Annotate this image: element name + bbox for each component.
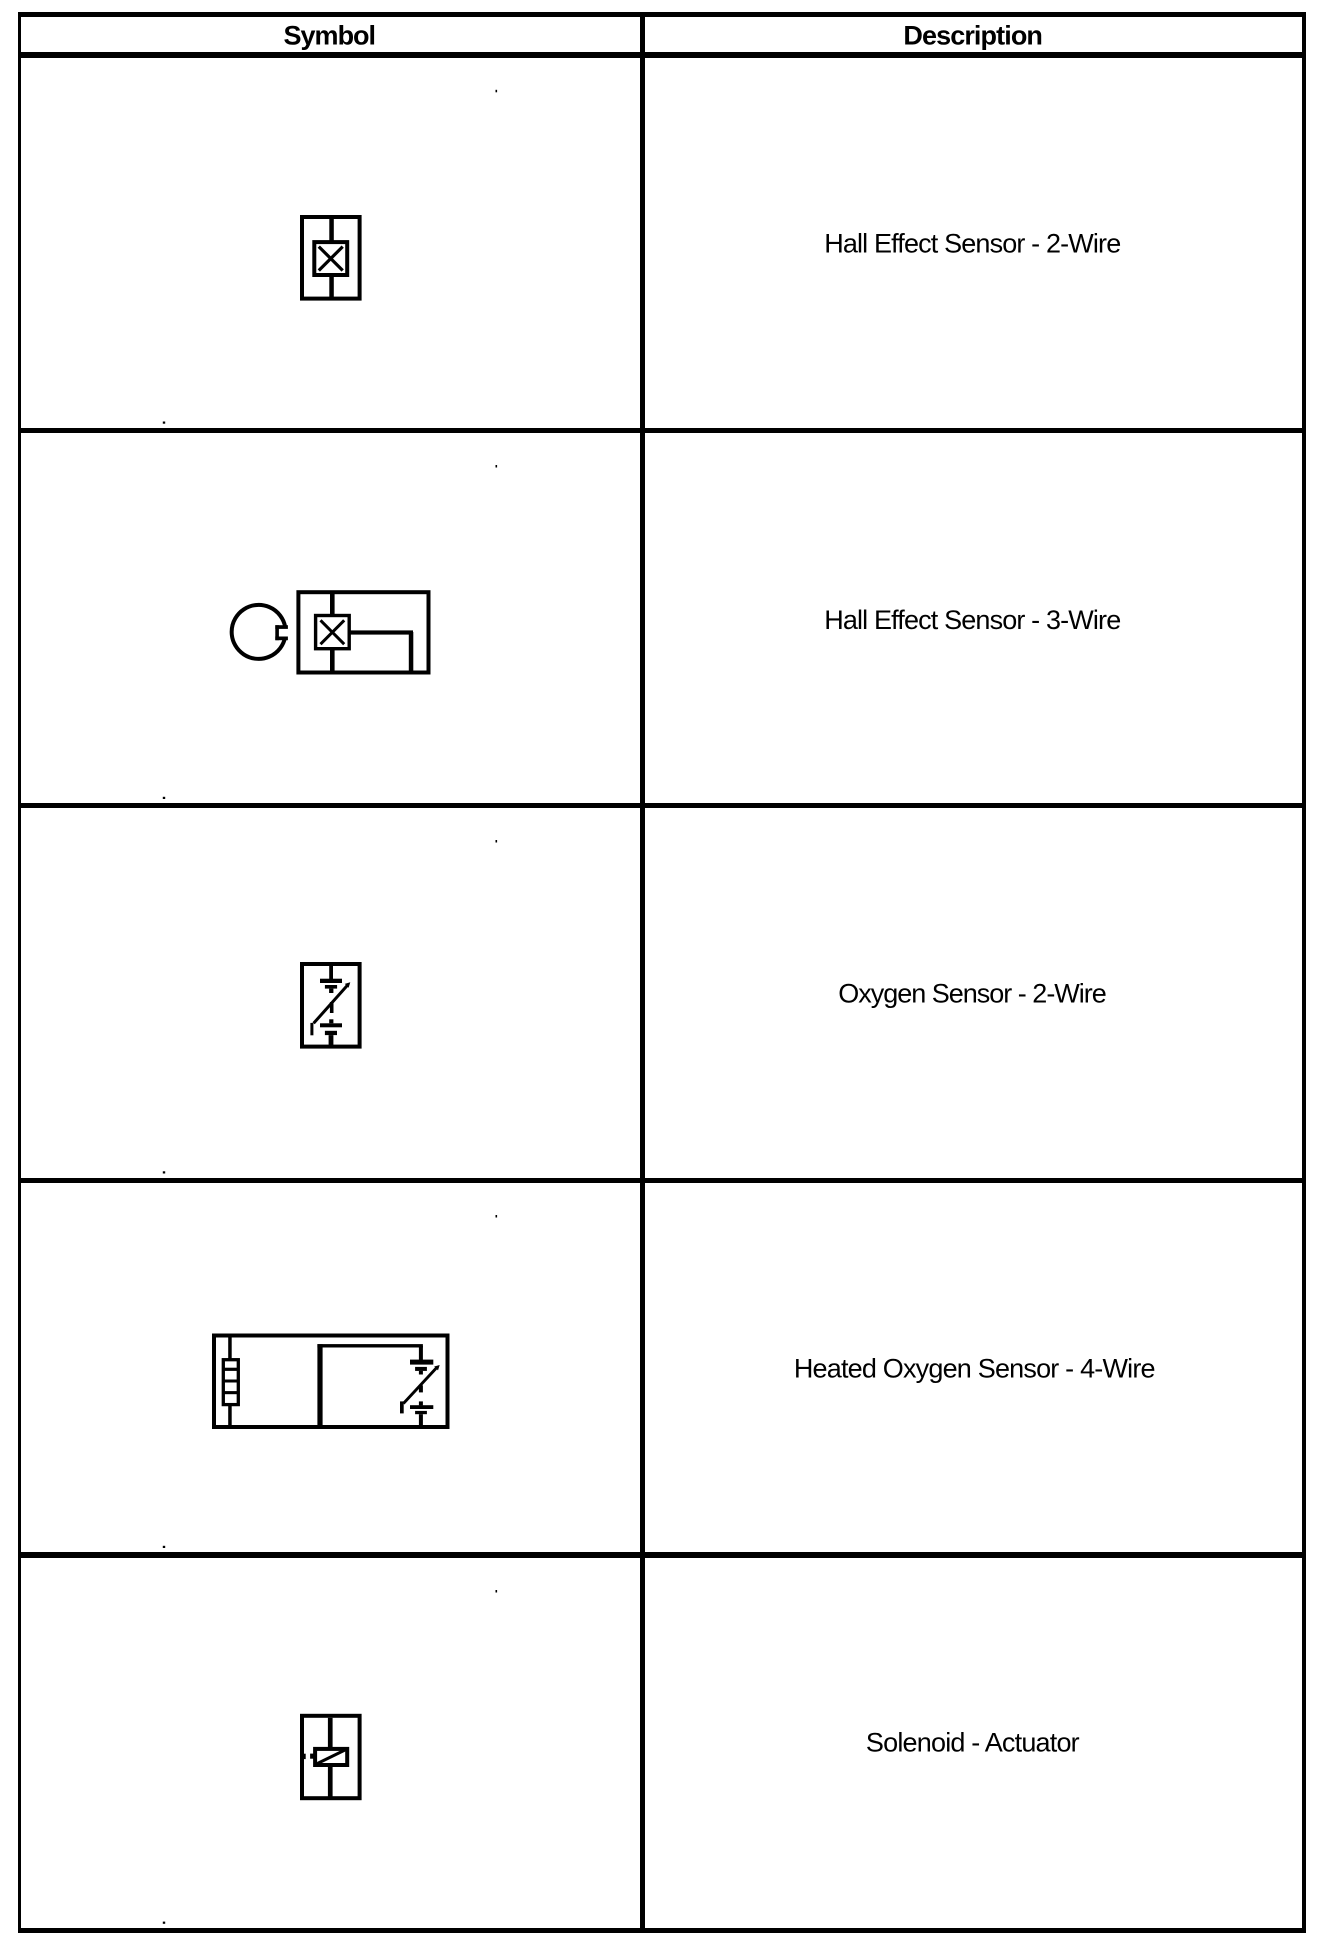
svg-text:Heated Oxygen Sensor - 4-Wire: Heated Oxygen Sensor - 4-Wire [794,1354,1155,1384]
svg-text:Symbol: Symbol [284,21,376,51]
svg-text:Hall Effect Sensor - 3-Wire: Hall Effect Sensor - 3-Wire [824,605,1120,635]
svg-text:Solenoid - Actuator: Solenoid - Actuator [866,1728,1080,1758]
svg-text:Oxygen Sensor - 2-Wire: Oxygen Sensor - 2-Wire [838,979,1106,1009]
svg-text:Description: Description [903,21,1042,51]
svg-text:Hall Effect Sensor - 2-Wire: Hall Effect Sensor - 2-Wire [824,228,1120,258]
